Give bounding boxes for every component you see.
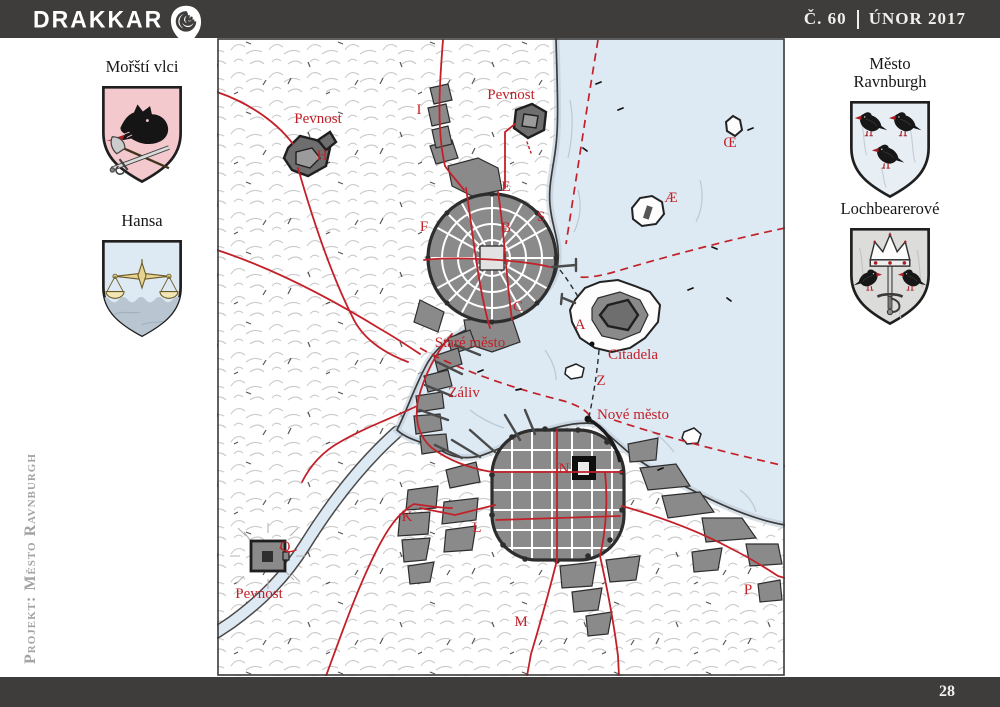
map-label-n: N — [559, 461, 570, 477]
map-svg: PevnostHIPevnostESBFCAÆŒStaré městoCitad… — [217, 38, 785, 676]
map-label-pevnost-west: Pevnost — [294, 111, 342, 127]
map-label-k: K — [402, 509, 413, 525]
header-bar: DRAKKAR Č. 60 ÚNOR 2017 — [0, 0, 1000, 38]
project-margin-note: Projekt: Město Ravnburgh — [22, 424, 40, 664]
footer-bar: 28 — [0, 677, 1000, 707]
map-label-pevnost-north: Pevnost — [487, 87, 535, 103]
shield-morsti-vlci — [96, 81, 188, 187]
coat-of-arms-morsti-vlci: Mořští vlci — [75, 58, 209, 187]
map-label-h: H — [317, 148, 328, 164]
map-label-f: F — [420, 219, 428, 235]
drakkar-spiral-icon — [170, 4, 202, 49]
map-label-ae: Æ — [664, 190, 677, 206]
map-label-i: I — [417, 102, 422, 118]
shield-mesto-ravnburgh — [844, 96, 936, 202]
water-base — [101, 297, 184, 341]
magazine-logo: DRAKKAR — [33, 4, 202, 49]
coa-title-hansa: Hansa — [75, 212, 209, 230]
coat-of-arms-hansa: Hansa — [75, 212, 209, 341]
magazine-title: DRAKKAR — [33, 3, 163, 35]
issue-info: Č. 60 ÚNOR 2017 — [804, 0, 966, 38]
map-label-oe: Œ — [723, 135, 736, 151]
map-label-nove-mesto: Nové město — [597, 407, 669, 423]
city-map: PevnostHIPevnostESBFCAÆŒStaré městoCitad… — [217, 38, 785, 676]
shield-lochbearerove — [844, 223, 936, 329]
map-label-zaliv: Záliv — [448, 385, 480, 401]
map-label-l: L — [472, 520, 481, 536]
issue-date: ÚNOR 2017 — [869, 9, 966, 29]
coa-title-mesto-ravnburgh: Město Ravnburgh — [845, 55, 935, 91]
map-label-pevnost-south: Pevnost — [235, 586, 283, 602]
shield-hansa — [96, 235, 188, 341]
coat-of-arms-lochbearerove: Lochbearerové — [823, 200, 957, 329]
map-label-q: Q — [280, 539, 291, 555]
map-label-e: E — [501, 179, 510, 195]
coa-title-lochbearerove: Lochbearerové — [823, 200, 957, 218]
map-label-m: M — [514, 614, 527, 630]
oe-island — [726, 116, 742, 136]
page-number: 28 — [939, 677, 955, 707]
map-label-stare-mesto: Staré město — [435, 335, 505, 351]
coat-of-arms-mesto-ravnburgh: Město Ravnburgh — [823, 55, 957, 202]
map-label-z: Z — [596, 373, 605, 389]
map-label-c: C — [513, 299, 523, 315]
map-label-a: A — [575, 317, 586, 333]
map-label-b: B — [501, 220, 511, 236]
issue-divider — [857, 10, 859, 29]
map-label-citadela: Citadela — [608, 347, 658, 363]
map-label-s: S — [537, 209, 545, 225]
map-label-p: P — [744, 582, 752, 598]
coa-title-morsti-vlci: Mořští vlci — [75, 58, 209, 76]
issue-number: Č. 60 — [804, 9, 847, 29]
